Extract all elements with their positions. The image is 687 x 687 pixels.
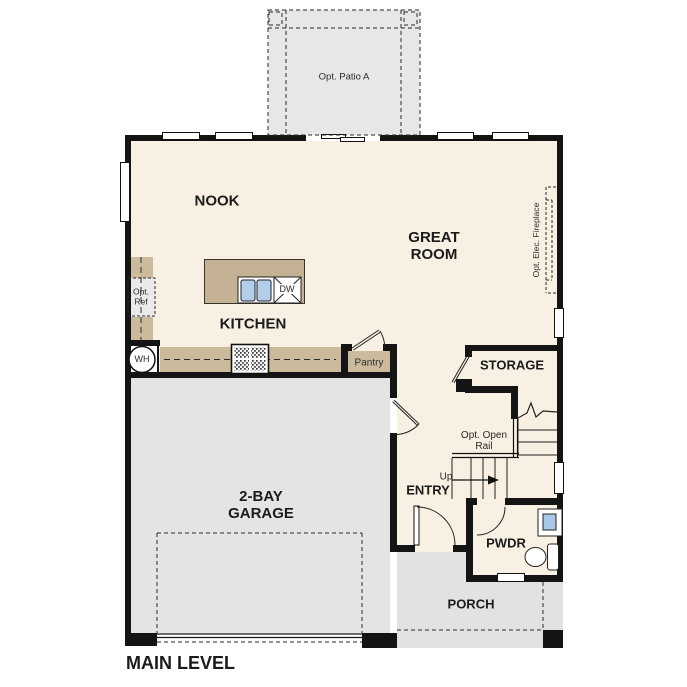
- wall-pantry-top-left-stub: [341, 344, 352, 351]
- annotation-open-rail: Opt. Open Rail: [456, 430, 512, 452]
- entry-floor-area: [397, 372, 557, 582]
- window-stair-right: [554, 462, 564, 494]
- annotation-opt-ref: Opt. Ref: [128, 287, 154, 306]
- window-pwdr-bottom: [497, 573, 525, 582]
- wall-storage-left-stub-top: [465, 345, 472, 357]
- wall-entry-bottom-left: [390, 545, 415, 552]
- wall-stair-vertical: [511, 386, 518, 419]
- wall-right: [557, 135, 563, 582]
- kitchen-counter: [160, 347, 341, 372]
- room-label-great-room: GREAT ROOM: [394, 230, 474, 264]
- wall-storage-top: [465, 345, 563, 351]
- room-label-entry: ENTRY: [406, 484, 450, 499]
- window-nook-top-1: [162, 132, 200, 140]
- annotation-dw: DW: [279, 284, 296, 294]
- wall-pwdr-left: [466, 498, 473, 582]
- wall-garage-bottom-right-block: [362, 633, 397, 648]
- room-label-nook: NOOK: [195, 194, 240, 211]
- room-label-pwdr: PWDR: [486, 537, 526, 552]
- room-label-garage: 2-BAY GARAGE: [216, 489, 306, 523]
- room-label-porch: PORCH: [448, 598, 495, 613]
- floor-plan-canvas: NOOK KITCHEN GREAT ROOM 2-BAY GARAGE ENT…: [0, 0, 687, 687]
- left-counter-upper: [131, 257, 153, 278]
- window-greatroom-right: [554, 308, 564, 338]
- garage-door-panel: [157, 634, 362, 638]
- window-nook-left: [120, 162, 130, 222]
- annotation-patio: Opt. Patio A: [319, 73, 370, 84]
- wall-garage-bottom-left-block: [125, 633, 157, 646]
- annotation-pantry: Pantry: [355, 357, 384, 368]
- wall-wh-stub: [125, 340, 160, 346]
- wall-pwdr-top-right: [505, 498, 563, 505]
- annotation-up: Up: [440, 471, 453, 482]
- kitchen-island: [204, 259, 305, 304]
- plan-title: MAIN LEVEL: [126, 653, 235, 673]
- wall-entry-left-upper: [390, 344, 397, 398]
- porch-post: [543, 630, 563, 648]
- main-floor-area: [131, 141, 557, 372]
- window-nook-top-2: [215, 132, 253, 140]
- wall-entry-left-lower: [390, 433, 397, 545]
- room-label-storage: STORAGE: [480, 359, 544, 374]
- window-greatroom-top-1: [437, 132, 474, 140]
- patio-sliding-door-panel-2: [340, 137, 365, 142]
- window-greatroom-top-2: [492, 132, 529, 140]
- annotation-wh: WH: [135, 354, 150, 364]
- room-label-kitchen: KITCHEN: [220, 317, 287, 334]
- annotation-fireplace: Opt. Elec. Fireplace: [532, 203, 542, 278]
- wall-kitchen-garage: [125, 372, 397, 378]
